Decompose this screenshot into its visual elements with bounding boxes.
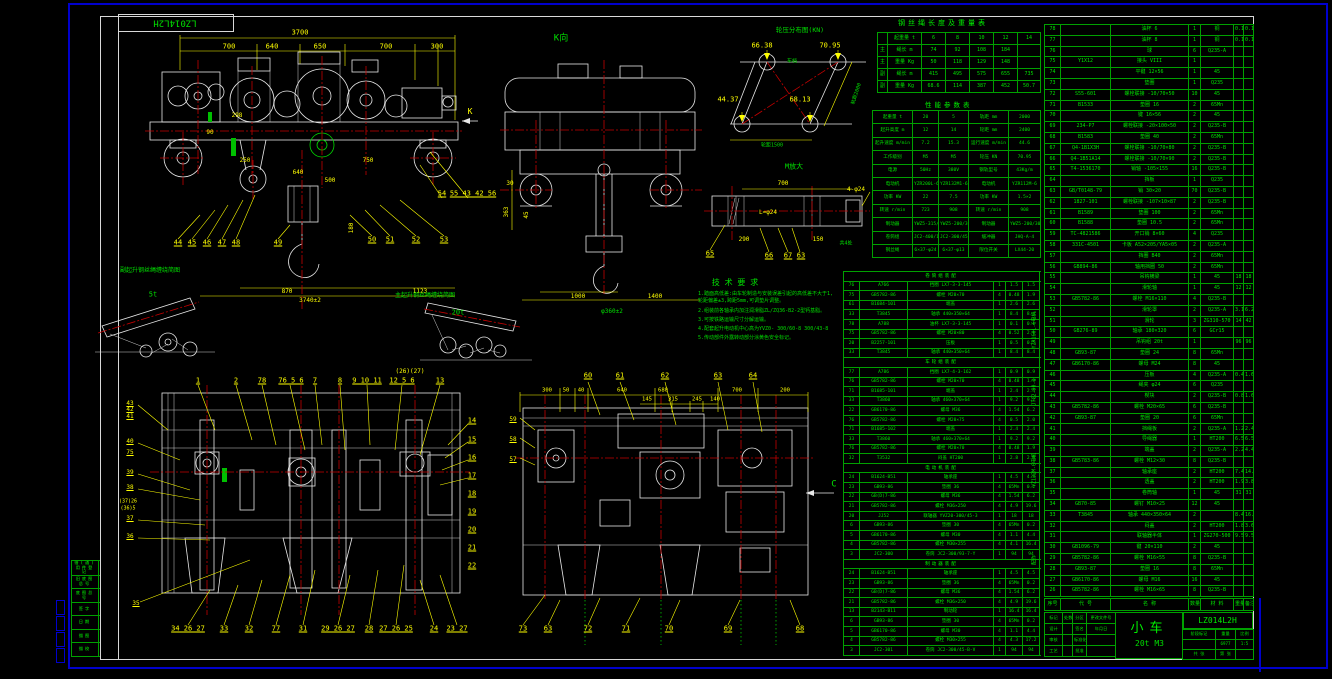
table-cell: 46 [1045, 370, 1061, 381]
table-cell: 96 [1244, 338, 1254, 349]
table-cell [1087, 635, 1116, 646]
table-cell: HT200 [1201, 521, 1234, 532]
table-cell: 1 [1189, 176, 1201, 187]
reeving-sketch-aux [95, 298, 215, 357]
table-cell: 底图总号 [72, 589, 99, 603]
table-cell: B1624-B51 [860, 473, 908, 483]
table-cell: 6.2 [1244, 305, 1254, 316]
table-cell: Q4-1B1X3H [1061, 143, 1111, 154]
table-cell: 年月日 [1087, 624, 1116, 635]
table-cell: 4 [994, 579, 1006, 589]
table-cell: 65Mn [1006, 579, 1023, 589]
table-cell: 卷筒轴 [1111, 489, 1189, 500]
table-cell: 主 [878, 57, 888, 69]
table-cell: HT200 [1201, 467, 1234, 478]
table-cell [1244, 240, 1254, 251]
table-cell: 销轴 -105×155 [1111, 165, 1189, 176]
table-cell: 65Mn [1201, 348, 1234, 359]
table-cell: 1 [1189, 284, 1201, 295]
table-cell: Q235-A [1201, 240, 1234, 251]
table-cell: 8 [1189, 359, 1201, 370]
table-cell: 2.8 [1023, 454, 1040, 464]
table-cell: GB5782-86 [1061, 402, 1111, 413]
table-cell: 描校 [72, 643, 99, 657]
table-cell: 1 [994, 396, 1006, 406]
table-cell: Y1X12 [1061, 57, 1111, 68]
table-cell: GB6170-86 [1061, 359, 1111, 370]
table-cell: 6.5 [1244, 435, 1254, 446]
table-cell: 108 [970, 45, 994, 57]
table-cell: 40 [1045, 435, 1061, 446]
table-cell: 电动机装配 [844, 463, 1040, 473]
table-cell: Q235-A [1201, 46, 1234, 57]
table-cell: 更改文件号 [1087, 613, 1116, 624]
table-cell: GB93-87 [1061, 413, 1111, 424]
table-cell: GB5782-86 [860, 502, 908, 512]
table-cell: 2 [1189, 100, 1201, 111]
table-cell: 0.2 [1023, 483, 1040, 493]
table-cell: 4.4 [1023, 531, 1040, 541]
table-cell: 4 [994, 291, 1006, 301]
table-cell: 2 [1189, 510, 1201, 521]
table-cell: 设计 [1045, 624, 1063, 635]
table-cell: 0.2 [1023, 579, 1040, 589]
table-cell: 75 [1045, 57, 1061, 68]
table-cell: 723 [913, 204, 939, 217]
table-cell [1234, 186, 1244, 197]
table-cell: 2 [1189, 521, 1201, 532]
parts-list-table: 78油杯 61铜0.10.177油杯 81铜0.10.176球6Q235-A75… [1044, 24, 1254, 597]
table-cell: 1 [1189, 25, 1201, 36]
table-cell [1234, 57, 1244, 68]
table-cell: 50.7 [1018, 81, 1041, 93]
table-cell: 118 [946, 57, 970, 69]
table-cell [1244, 165, 1254, 176]
table-cell: 卷筒 JC2-300/93-7-Y [908, 550, 994, 560]
table-cell: 1 [994, 454, 1006, 464]
table-cell: 8 [1189, 554, 1201, 565]
table-cell: 33 [1045, 510, 1061, 521]
table-cell: 9.2 [1023, 435, 1040, 445]
table-cell: T3845 [1061, 510, 1111, 521]
table-cell: 60 [1045, 219, 1061, 230]
table-cell: 0.5 [1006, 339, 1023, 349]
table-cell: GB5782-86 [860, 598, 908, 608]
table-cell [1061, 35, 1111, 46]
table-cell: 21 [844, 502, 860, 512]
table-cell: Q235-A [1201, 370, 1234, 381]
table-cell: 卷筒 JC2-300/45-B-V [908, 646, 994, 656]
table-cell: 4 [994, 531, 1006, 541]
table-cell [1061, 176, 1111, 187]
table-cell: 2.4 [1006, 425, 1023, 435]
table-cell: 备注 [1244, 599, 1254, 611]
table-cell: T4-1536170 [1061, 165, 1111, 176]
table-cell: YZR200L-6 [913, 177, 939, 190]
note-line: 5.传动部件外露转动部分涂黄色安全标记。 [698, 335, 836, 342]
table-cell [1234, 240, 1244, 251]
table-cell: 轴承 460×370×64 [908, 396, 994, 406]
table-cell: 4 [994, 636, 1006, 646]
table-cell: 螺母 M36 [908, 588, 994, 598]
table-cell: 钢丝绳 [873, 244, 913, 257]
table-cell: 螺栓 M36×250 [908, 598, 994, 608]
table-cell [1244, 413, 1254, 424]
table-cell: 4 [994, 444, 1006, 454]
table-cell: 44.6 [1009, 137, 1041, 150]
table-cell: 28 [1045, 564, 1061, 575]
table-cell: 8.4 [1023, 348, 1040, 358]
table-cell: GB93-86 [860, 579, 908, 589]
table-cell: 77 [844, 367, 860, 377]
table-cell: 47 [1045, 359, 1061, 370]
table-cell [1234, 575, 1244, 586]
drawing-code: LZ014L2H [1182, 612, 1253, 629]
table-cell: 64 [1045, 176, 1061, 187]
table-cell: JJ52 [860, 511, 908, 521]
table-cell: GB/T0148-79 [1061, 186, 1111, 197]
table-cell: 1.6 [1244, 392, 1254, 403]
table-cell: 45 [1201, 359, 1234, 370]
table-cell [1061, 467, 1111, 478]
table-cell: Q235 [1201, 176, 1234, 187]
note-line: 2.组装前各轴承内加注润滑脂ZL/ZQ36-B2-2型钙基脂。 [698, 308, 836, 315]
table-cell: 34 [1045, 500, 1061, 511]
table-cell: 车轮组装配 [844, 358, 1040, 368]
table-cell: 2 [1189, 132, 1201, 143]
table-cell: 495 [946, 69, 970, 81]
table-cell: GB70-85 [1061, 500, 1111, 511]
table-cell: 12 [1244, 284, 1254, 295]
table-cell [878, 33, 888, 45]
table-cell: 2.6 [1006, 300, 1023, 310]
table-cell: 18 [1234, 273, 1244, 284]
table-cell: A766 [860, 281, 908, 291]
table-cell: 1 [994, 319, 1006, 329]
table-cell: 12 [1189, 500, 1201, 511]
table-cell: 45 [1201, 68, 1234, 79]
table-cell: 油杯 6 [1111, 25, 1189, 36]
table-cell: 55 [1045, 273, 1061, 284]
table-cell: 描图 [72, 629, 99, 643]
table-cell: 32 [844, 454, 860, 464]
table-cell [1234, 456, 1244, 467]
note-line: 3.可按铁路运输尺寸分解运输。 [698, 317, 836, 324]
table-cell: 1.5×2 [1009, 191, 1041, 204]
table-cell: M5 [939, 151, 969, 164]
table-cell: 66 [1045, 154, 1061, 165]
table-cell: 4.5 [1006, 473, 1023, 483]
table-cell: 6 [844, 617, 860, 627]
table-cell: 制动器 [969, 218, 1009, 231]
table-cell: 65Mn [1201, 251, 1234, 262]
table-cell: 65Mn [1201, 208, 1234, 219]
table-cell: B1533 [1061, 100, 1111, 111]
table-cell: YWZ5-200/30 [939, 218, 969, 231]
table-cell: 3 [844, 646, 860, 656]
table-cell: 轴用挡圈 50 [1111, 262, 1189, 273]
table-cell: 轮距 mm [969, 124, 1009, 137]
table-cell: GB5782-86 [860, 540, 908, 550]
table-cell: 分区 [1073, 613, 1087, 624]
table-cell: 材 料 [1201, 599, 1234, 611]
table-cell: 8 [1189, 348, 1201, 359]
table-cell: Q235-B [1201, 186, 1234, 197]
table-cell [1061, 316, 1111, 327]
table-cell: 5 [844, 531, 860, 541]
table-cell: 6 [844, 521, 860, 531]
table-cell: 23 [844, 579, 860, 589]
table-cell: 2.4 [1244, 424, 1254, 435]
section-view-a [138, 385, 470, 625]
table-cell: 螺母 M36 [908, 406, 994, 416]
table-cell [1244, 143, 1254, 154]
table-cell: 8.4 [1234, 510, 1244, 521]
table-cell: B1685-101 [860, 387, 908, 397]
table-cell: 标记 [1045, 613, 1063, 624]
table-cell: 10 [970, 33, 994, 45]
table-cell [1234, 294, 1244, 305]
table-cell: 旧底图总号 [72, 575, 99, 589]
table-cell: 9.2 [1006, 435, 1023, 445]
table-cell: 2 [1189, 154, 1201, 165]
table-cell: 655 [994, 69, 1018, 81]
table-cell: 92 [946, 45, 970, 57]
table-cell: JC2-300 [860, 550, 908, 560]
table-cell: 33 [844, 435, 860, 445]
table-cell: 65Mn [1201, 132, 1234, 143]
table-cell: Q235-B [1201, 402, 1234, 413]
table-cell: 331C-4501 [1061, 240, 1111, 251]
table-cell: 4.9 [1006, 502, 1023, 512]
table-cell: 0.9 [1023, 367, 1040, 377]
table-cell: 4.3 [1006, 636, 1023, 646]
table-cell: 6 [1189, 327, 1201, 338]
table-cell: 2.0 [1023, 415, 1040, 425]
table-cell: 钢轨型号 [969, 164, 1009, 177]
table-cell: 4.4 [1244, 446, 1254, 457]
table-cell [1061, 68, 1111, 79]
table-cell [1201, 510, 1234, 521]
table-cell: 1 [1189, 338, 1201, 349]
table-cell: 387 [970, 81, 994, 93]
table-cell [1244, 46, 1254, 57]
table-cell [1234, 100, 1244, 111]
table-cell: 39 [1045, 446, 1061, 457]
table-cell: 76 [844, 281, 860, 291]
table-cell: 挡圈 LX7-4-3-162 [908, 367, 994, 377]
table-cell [1244, 554, 1254, 565]
table-cell: 33 [844, 348, 860, 358]
table-cell: 1 [1189, 57, 1201, 68]
param-table-title: 性能参数表 [925, 99, 973, 109]
table-cell: 闷盖 [1111, 521, 1189, 532]
table-cell: GB93-86 [860, 521, 908, 531]
table-cell: 6.2 [1023, 492, 1040, 502]
table-cell [1061, 532, 1111, 543]
table-cell [1063, 646, 1073, 657]
table-cell: 透盖 [1111, 478, 1189, 489]
table-cell: 挡圈 LX7-3-3-145 [908, 281, 994, 291]
table-cell [1244, 543, 1254, 554]
table-cell: 33 [844, 310, 860, 320]
table-cell: 18 [1244, 273, 1254, 284]
table-cell: 螺母 M16 [1111, 575, 1189, 586]
table-cell: 螺栓 M16×55 [1111, 554, 1189, 565]
table-cell: 滑轮罩 [1111, 305, 1189, 316]
table-cell [1244, 78, 1254, 89]
table-cell [1234, 413, 1244, 424]
table-cell: 0.1 [1006, 319, 1023, 329]
table-cell: Q235-B [1201, 294, 1234, 305]
table-cell: 重量 [1216, 630, 1236, 640]
wheel-load-diagram [730, 50, 866, 140]
table-cell: 50 [922, 57, 946, 69]
table-cell: 螺钉 M10×25 [1111, 500, 1189, 511]
table-cell: 起升高度 m [873, 124, 913, 137]
table-cell: 735 [1018, 69, 1041, 81]
table-cell: 70.95 [1009, 151, 1041, 164]
table-cell: 31 [1045, 532, 1061, 543]
title-block: 标记处数分区更改文件号设计签名年月日审核标准化工艺批准 小车 20t M3 LZ… [1044, 612, 1253, 659]
table-cell: 8 [1189, 456, 1201, 467]
table-cell: GB5782-86 [860, 415, 908, 425]
table-cell: 65Mn [1201, 413, 1234, 424]
table-cell: 1 [1189, 35, 1201, 46]
parts-list-header: 序号代 号名 称数量材 料重量备注 [1044, 598, 1254, 611]
table-cell: 螺栓 M20×70 [908, 444, 994, 454]
table-cell [1234, 543, 1244, 554]
table-cell: 49 [1045, 338, 1061, 349]
table-cell: TC-4821586 [1061, 230, 1111, 241]
table-cell: 1 [1189, 489, 1201, 500]
table-cell: Q235-B [1201, 456, 1234, 467]
table-cell: 螺母 M30 [908, 626, 994, 636]
table-cell: 45 [1201, 575, 1234, 586]
table-cell: 垫圈 16 [1111, 564, 1189, 575]
table-cell: 1:5 [1236, 640, 1254, 650]
table-cell: 6.5 [1234, 435, 1244, 446]
table-cell: 6×37-φ24 [913, 244, 939, 257]
table-cell: 2.8 [1006, 454, 1023, 464]
table-cell [1061, 78, 1111, 89]
table-cell: 螺母 M36 [908, 492, 994, 502]
table-cell: 名 称 [1111, 599, 1189, 611]
table-cell: 重量 Kg [888, 57, 922, 69]
section-view-b [515, 382, 834, 645]
table-cell: 7.5 [939, 191, 969, 204]
table-cell: GB276-89 [1061, 327, 1111, 338]
table-cell: 起重量 t [873, 111, 913, 124]
table-cell: 1 [994, 646, 1006, 656]
table-cell [1061, 392, 1111, 403]
table-cell: 575 [970, 69, 994, 81]
table-cell: 94 [1023, 550, 1040, 560]
table-cell [1244, 575, 1254, 586]
table-cell [1244, 262, 1254, 273]
table-cell: 转速 r/min [873, 204, 913, 217]
table-cell: 吊钩横梁 [1111, 273, 1189, 284]
table-cell: 12 [913, 124, 939, 137]
table-cell: JC2-301 [860, 646, 908, 656]
table-cell: 垫圈 100 [1111, 208, 1189, 219]
table-cell: 3.6 [1244, 521, 1254, 532]
table-cell [1061, 370, 1111, 381]
table-cell: 阶段标记 [1183, 630, 1216, 640]
main-elevation-view [145, 35, 478, 310]
table-cell: 螺栓联接 -10/70×80 [1111, 143, 1189, 154]
table-cell: 9.2 [1023, 396, 1040, 406]
table-cell [1244, 348, 1254, 359]
table-cell: 74 [1045, 68, 1061, 79]
table-cell: 4 [994, 377, 1006, 387]
table-cell: 76 [1045, 46, 1061, 57]
table-cell [1244, 197, 1254, 208]
table-cell: Q235-B [1201, 143, 1234, 154]
table-cell: 16.4 [1023, 607, 1040, 617]
table-cell: 螺栓 M16×65 [1111, 586, 1189, 597]
table-cell: 65Mn [1201, 100, 1234, 111]
table-cell [1061, 489, 1111, 500]
table-cell: 38 [1045, 456, 1061, 467]
table-cell: 7.2 [913, 137, 939, 150]
table-cell: 垫圈 30 [908, 521, 994, 531]
table-cell: 螺栓 M20×65 [1111, 402, 1189, 413]
table-cell: 垫圈 36 [908, 579, 994, 589]
table-cell [1183, 640, 1216, 650]
table-cell [1236, 650, 1254, 660]
table-cell: 20 [844, 339, 860, 349]
table-cell: 8 [1189, 564, 1201, 575]
table-cell: 2 [1189, 446, 1201, 457]
table-cell [1244, 294, 1254, 305]
table-cell: 卡板 A52×205/YA5×05 [1111, 240, 1189, 251]
table-cell: 1.1 [1006, 626, 1023, 636]
table-cell: 2 [1189, 240, 1201, 251]
table-cell: GB894-86 [1061, 262, 1111, 273]
table-cell: 1 [994, 387, 1006, 397]
table-cell: 螺栓 M20×75 [908, 415, 994, 425]
assembly-parts-table: 卷筒组装配76A766挡圈 LX7-3-3-14511.51.575GB5782… [843, 271, 1040, 656]
table-cell: 71 [844, 425, 860, 435]
table-cell: Q4-1B51A14 [1061, 154, 1111, 165]
table-cell: T3845 [860, 348, 908, 358]
table-cell [1244, 219, 1254, 230]
table-cell: 螺母 M30 [908, 531, 994, 541]
table-cell: 35 [1045, 489, 1061, 500]
table-cell: 1.5 [1006, 281, 1023, 291]
table-cell: 7.4 [1234, 467, 1244, 478]
table-cell [1244, 359, 1254, 370]
table-cell: GB5782-86 [860, 636, 908, 646]
table-cell: A788 [860, 319, 908, 329]
table-cell: 43 [1045, 402, 1061, 413]
table-cell: 61 [844, 300, 860, 310]
table-cell: 第 张 [1216, 650, 1236, 660]
table-cell: 挡板 [1111, 176, 1189, 187]
table-cell: Q235 [1201, 230, 1234, 241]
table-cell: 14 [1018, 33, 1041, 45]
rope-table-title: 钢丝绳长度及重量表 [898, 18, 988, 28]
table-cell: 2.4 [1006, 387, 1023, 397]
table-cell: 电动机 [969, 177, 1009, 190]
reeving-sketch-main [420, 303, 532, 360]
table-cell: 1 [994, 348, 1006, 358]
table-cell: 轴承 460×370×64 [908, 435, 994, 445]
table-cell: 重量 Kg [888, 81, 922, 93]
table-cell: 10 [1189, 89, 1201, 100]
table-cell: 重量 [1234, 599, 1244, 611]
